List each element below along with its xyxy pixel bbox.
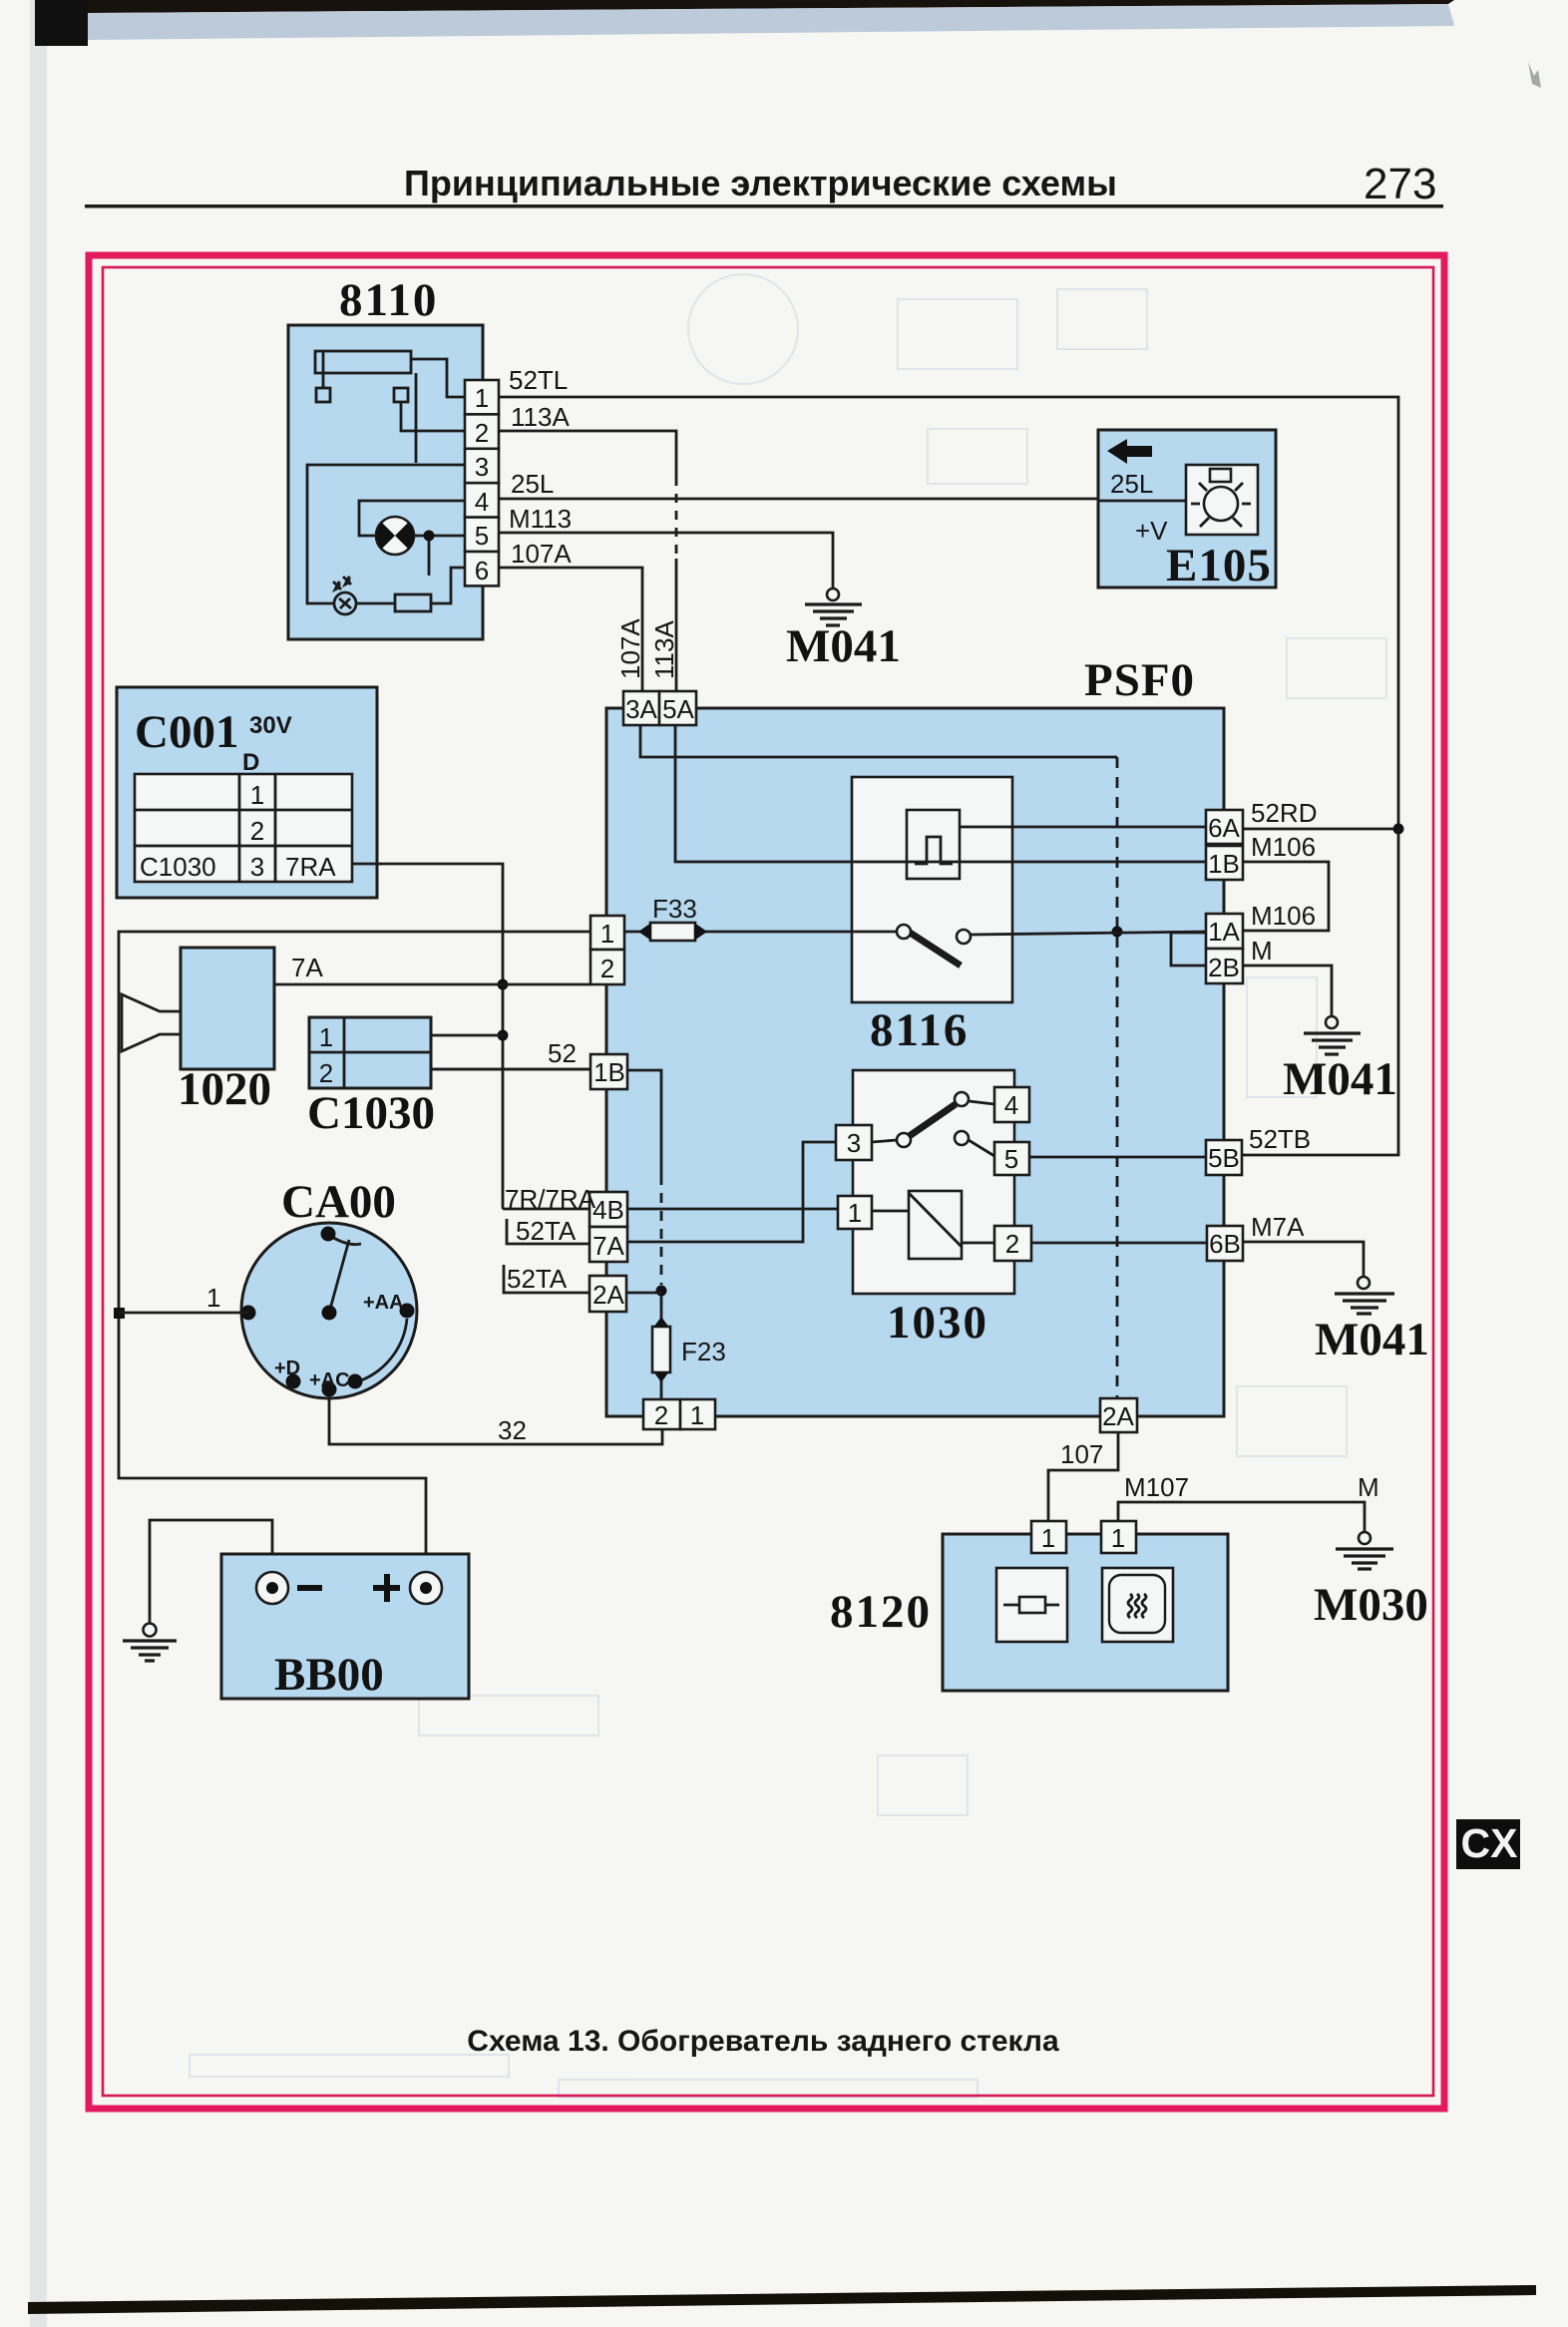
svg-text:6A: 6A bbox=[1208, 813, 1240, 843]
svg-text:52: 52 bbox=[548, 1038, 577, 1068]
svg-text:M107: M107 bbox=[1124, 1472, 1189, 1502]
svg-text:M030: M030 bbox=[1314, 1579, 1428, 1631]
svg-text:107: 107 bbox=[1060, 1439, 1103, 1469]
svg-text:Схема 13. Обогреватель заднего: Схема 13. Обогреватель заднего стекла bbox=[467, 2025, 1059, 2058]
svg-text:5B: 5B bbox=[1208, 1143, 1240, 1173]
svg-text:30V: 30V bbox=[249, 712, 292, 739]
svg-text:1A: 1A bbox=[1208, 917, 1240, 947]
svg-text:5: 5 bbox=[475, 521, 489, 551]
svg-text:C1030: C1030 bbox=[307, 1087, 435, 1139]
svg-text:1: 1 bbox=[690, 1400, 704, 1430]
svg-text:1B: 1B bbox=[593, 1057, 625, 1087]
svg-text:5A: 5A bbox=[662, 694, 694, 724]
svg-text:1: 1 bbox=[319, 1022, 333, 1052]
svg-text:107A: 107A bbox=[511, 539, 572, 569]
svg-text:E105: E105 bbox=[1166, 540, 1272, 591]
svg-text:3: 3 bbox=[250, 852, 264, 882]
svg-text:Принципиальные электрические с: Принципиальные электрические схемы bbox=[404, 163, 1117, 203]
svg-text:52TA: 52TA bbox=[516, 1216, 577, 1246]
svg-text:113A: 113A bbox=[511, 402, 570, 432]
svg-text:2B: 2B bbox=[1208, 953, 1240, 982]
svg-text:7R/7RA: 7R/7RA bbox=[505, 1184, 596, 1214]
svg-text:52TL: 52TL bbox=[509, 365, 568, 395]
svg-text:1030: 1030 bbox=[887, 1297, 988, 1349]
svg-text:1: 1 bbox=[600, 919, 614, 949]
svg-text:273: 273 bbox=[1364, 160, 1436, 208]
svg-text:C1030: C1030 bbox=[140, 852, 216, 882]
svg-text:3: 3 bbox=[847, 1128, 861, 1158]
svg-text:25L: 25L bbox=[1110, 469, 1153, 499]
svg-text:1B: 1B bbox=[1208, 849, 1240, 879]
svg-text:2: 2 bbox=[319, 1058, 333, 1088]
svg-text:4: 4 bbox=[1004, 1090, 1018, 1120]
svg-text:BB00: BB00 bbox=[274, 1649, 384, 1701]
svg-text:+D: +D bbox=[274, 1357, 300, 1379]
svg-text:1: 1 bbox=[1111, 1523, 1125, 1553]
svg-text:2A: 2A bbox=[592, 1280, 624, 1310]
svg-text:113A: 113A bbox=[649, 620, 679, 679]
svg-text:6B: 6B bbox=[1209, 1229, 1241, 1259]
svg-text:M106: M106 bbox=[1251, 832, 1316, 862]
svg-text:1: 1 bbox=[250, 780, 264, 810]
svg-text:32: 32 bbox=[498, 1415, 527, 1445]
svg-text:M: M bbox=[1358, 1472, 1379, 1502]
svg-text:107A: 107A bbox=[615, 618, 645, 679]
svg-text:1: 1 bbox=[1041, 1523, 1055, 1553]
svg-text:M113: M113 bbox=[509, 504, 572, 534]
svg-text:2: 2 bbox=[475, 418, 489, 448]
svg-text:3A: 3A bbox=[625, 694, 657, 724]
svg-text:+V: +V bbox=[1135, 516, 1168, 546]
svg-text:M106: M106 bbox=[1251, 901, 1316, 931]
svg-text:52TA: 52TA bbox=[507, 1264, 568, 1294]
svg-text:8116: 8116 bbox=[870, 1004, 969, 1056]
svg-text:F23: F23 bbox=[681, 1337, 726, 1366]
svg-text:8110: 8110 bbox=[339, 274, 438, 326]
svg-text:7A: 7A bbox=[291, 953, 323, 982]
svg-text:2: 2 bbox=[600, 954, 614, 983]
svg-text:F33: F33 bbox=[652, 894, 697, 924]
svg-text:4: 4 bbox=[475, 487, 489, 517]
svg-text:CX: CX bbox=[1461, 1820, 1518, 1866]
svg-text:M7A: M7A bbox=[1251, 1212, 1305, 1242]
svg-text:1: 1 bbox=[848, 1198, 862, 1228]
svg-text:D: D bbox=[242, 749, 259, 776]
svg-text:5: 5 bbox=[1004, 1144, 1018, 1174]
svg-text:M041: M041 bbox=[1315, 1314, 1429, 1365]
svg-text:M041: M041 bbox=[786, 620, 901, 672]
svg-text:1: 1 bbox=[206, 1283, 220, 1313]
svg-text:+AC: +AC bbox=[309, 1369, 350, 1391]
svg-text:52RD: 52RD bbox=[1251, 798, 1317, 828]
svg-text:2: 2 bbox=[654, 1400, 668, 1430]
svg-text:6: 6 bbox=[475, 556, 489, 585]
svg-text:CA00: CA00 bbox=[281, 1176, 396, 1228]
svg-text:4B: 4B bbox=[592, 1195, 624, 1225]
svg-text:2: 2 bbox=[1005, 1229, 1019, 1259]
svg-text:52TB: 52TB bbox=[1249, 1124, 1311, 1154]
svg-text:M: M bbox=[1251, 936, 1273, 966]
svg-text:1: 1 bbox=[475, 383, 489, 413]
svg-text:C001: C001 bbox=[135, 706, 238, 758]
svg-text:7A: 7A bbox=[592, 1231, 624, 1261]
svg-text:25L: 25L bbox=[511, 469, 554, 499]
svg-text:8120: 8120 bbox=[830, 1586, 932, 1638]
svg-text:1020: 1020 bbox=[178, 1063, 271, 1115]
svg-text:2: 2 bbox=[250, 816, 264, 846]
svg-text:+AA: +AA bbox=[363, 1292, 404, 1314]
svg-text:2A: 2A bbox=[1102, 1401, 1134, 1431]
svg-text:7RA: 7RA bbox=[285, 852, 336, 882]
svg-text:M041: M041 bbox=[1283, 1053, 1397, 1105]
svg-text:PSF0: PSF0 bbox=[1084, 654, 1195, 706]
svg-text:3: 3 bbox=[475, 452, 489, 482]
